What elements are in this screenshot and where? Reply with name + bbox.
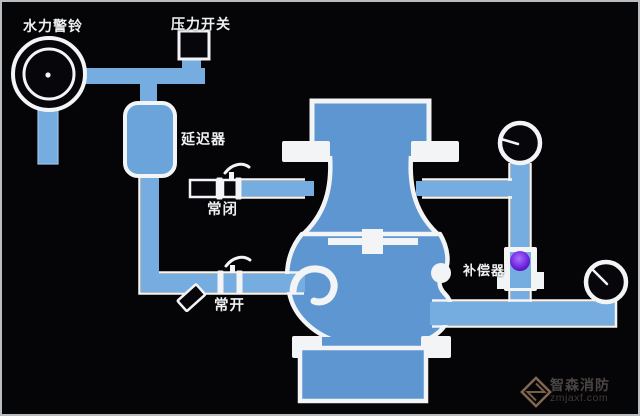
normally-closed-valve-icon bbox=[190, 164, 249, 199]
valve-seat-notch bbox=[431, 263, 451, 283]
alarm-line-pipe bbox=[416, 181, 513, 196]
normally-closed-label: 常闭 bbox=[207, 198, 238, 219]
pressure-gauge-top-icon bbox=[500, 123, 540, 163]
compensator-ball bbox=[510, 251, 530, 271]
normally-open-label: 常开 bbox=[214, 294, 245, 315]
retarder-icon bbox=[125, 103, 175, 176]
valve-handle-icon bbox=[226, 257, 250, 266]
retarder-label: 延迟器 bbox=[181, 129, 226, 149]
test-line-pipe bbox=[241, 181, 314, 196]
outlet-pipe bbox=[430, 302, 615, 325]
pressure-switch-label: 压力开关 bbox=[171, 14, 231, 34]
alarm-bell-icon bbox=[13, 38, 85, 110]
hydraulic-alarm-bell-label: 水力警铃 bbox=[23, 16, 83, 36]
valve-upper-flange-right bbox=[411, 141, 459, 162]
watermark: 智森消防 zmjaxf.com bbox=[521, 376, 610, 406]
watermark-brand: 智森消防 bbox=[550, 378, 610, 393]
pressure-switch-icon bbox=[179, 31, 209, 59]
valve-bonnet bbox=[312, 101, 429, 146]
clapper-bar bbox=[328, 238, 418, 245]
alarm-valve-diagram bbox=[2, 2, 638, 414]
pressure-gauge-bottom-icon bbox=[586, 262, 626, 302]
diagram-canvas: 水力警铃 压力开关 延迟器 常闭 常开 补偿器 智森消防 zmjaxf.com bbox=[0, 0, 640, 416]
watermark-domain: zmjaxf.com bbox=[550, 393, 610, 404]
clapper-hinge-top bbox=[362, 229, 383, 239]
watermark-logo-space bbox=[521, 376, 547, 406]
valve-handle-icon bbox=[225, 164, 249, 173]
compensator-label: 补偿器 bbox=[463, 260, 505, 279]
clapper-hinge-bottom bbox=[362, 244, 383, 254]
bell-drain-pipe bbox=[38, 109, 58, 164]
retarder-drain-pipe bbox=[141, 175, 159, 278]
valve-inlet-base bbox=[300, 348, 426, 401]
valve-upper-flange-left bbox=[282, 141, 330, 162]
